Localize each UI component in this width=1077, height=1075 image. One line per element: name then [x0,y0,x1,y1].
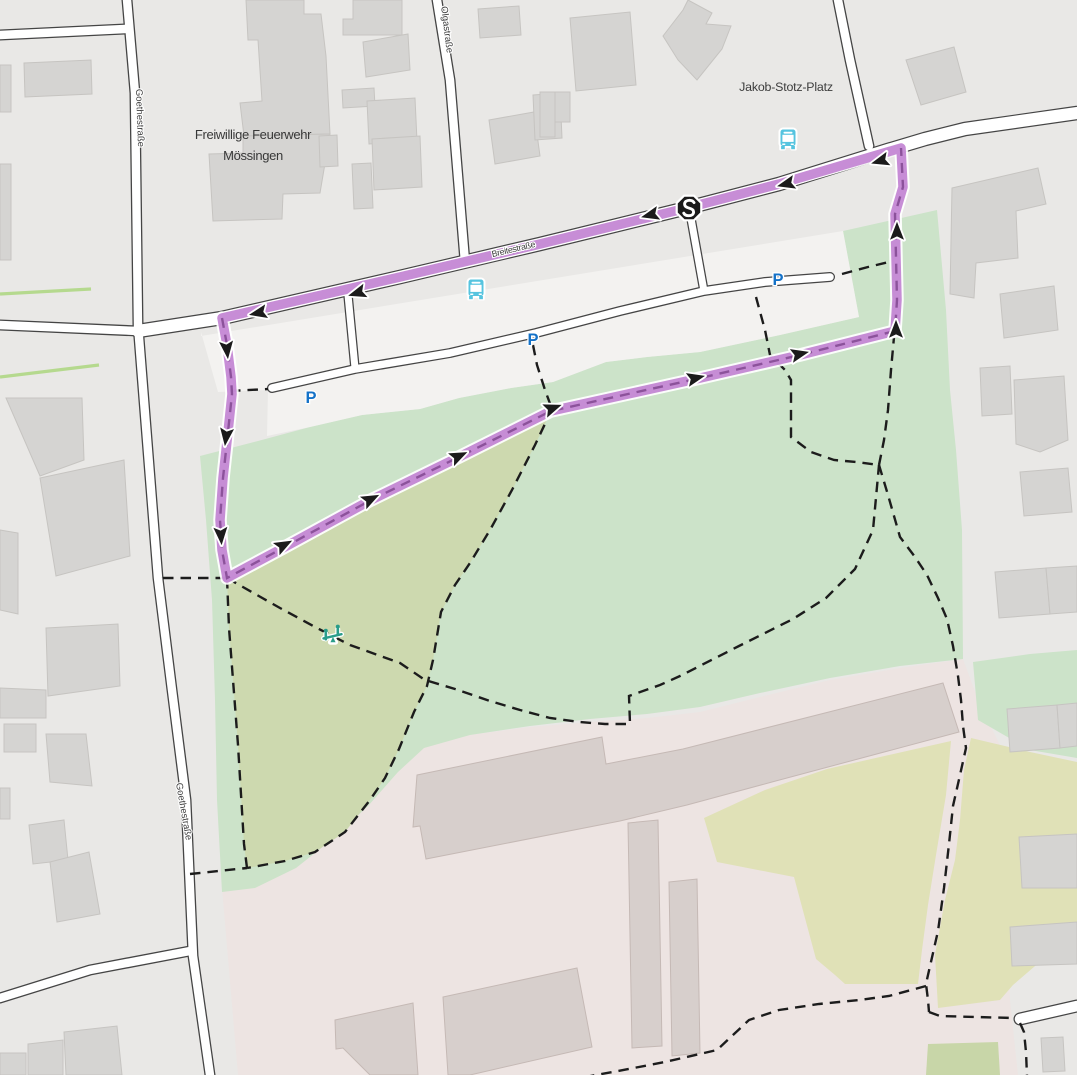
svg-text:Goethestraße: Goethestraße [133,89,146,147]
svg-text:Mössingen: Mössingen [223,148,283,163]
svg-text:Freiwillige Feuerwehr: Freiwillige Feuerwehr [195,127,312,142]
svg-text:P: P [772,271,783,289]
svg-text:Jakob-Stotz-Platz: Jakob-Stotz-Platz [739,80,833,94]
svg-text:P: P [527,331,538,349]
svg-text:P: P [305,389,316,407]
